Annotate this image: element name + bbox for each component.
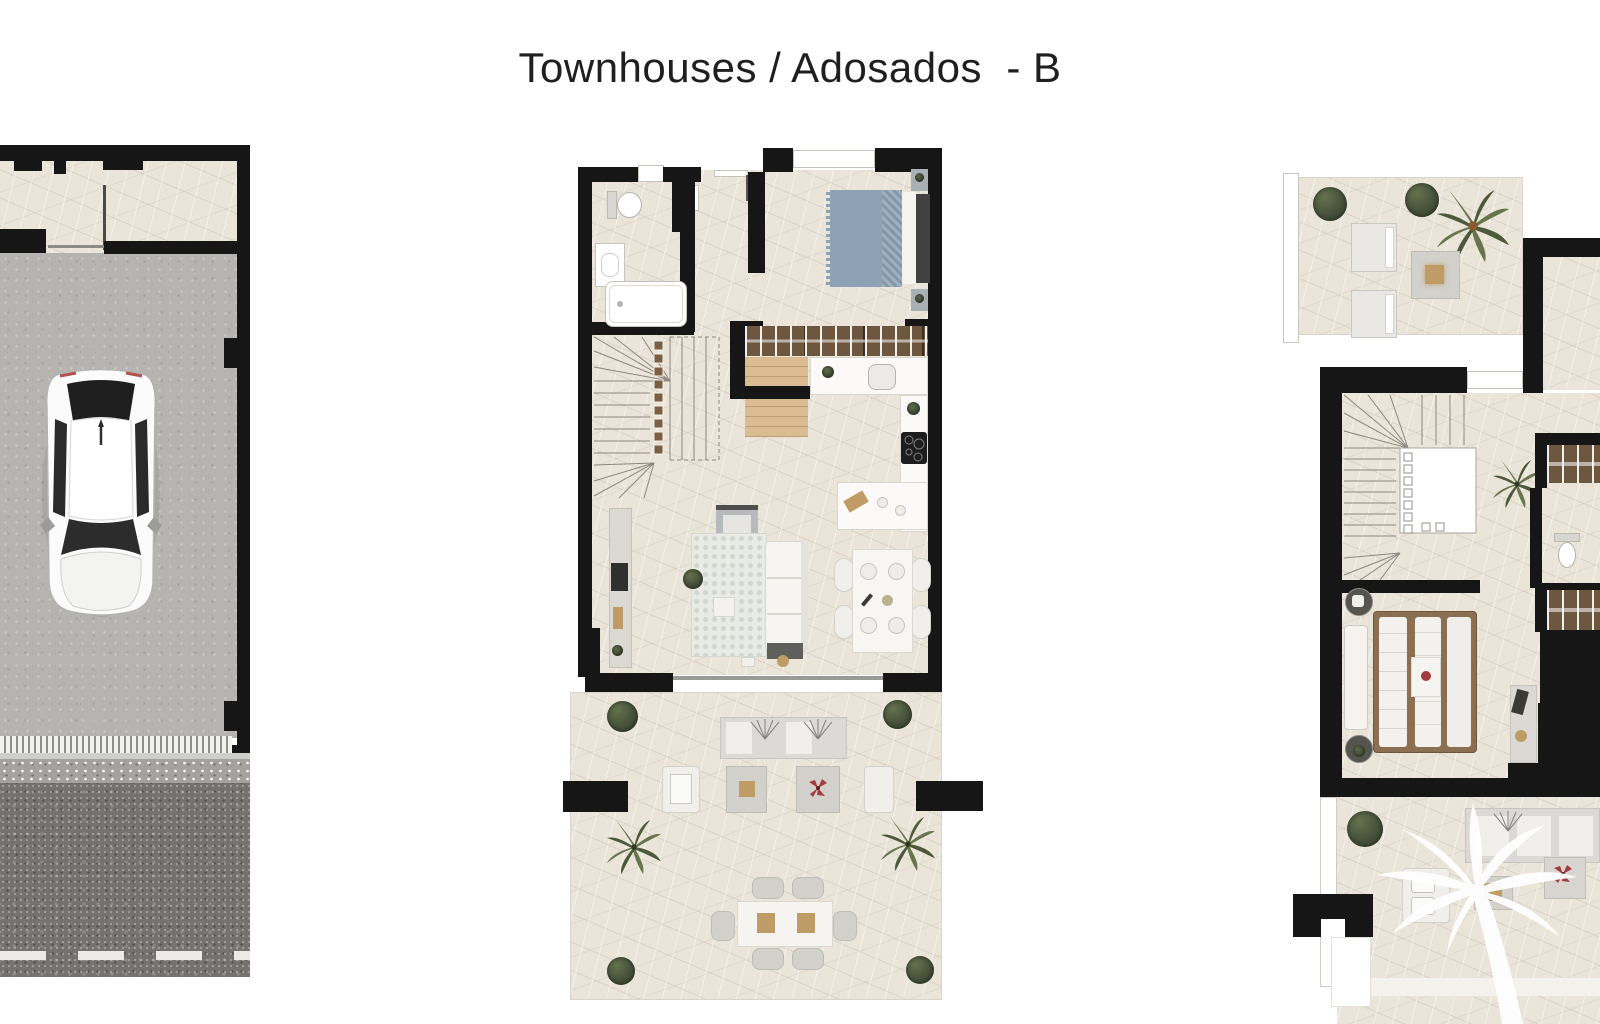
fire-bowl <box>1425 265 1444 284</box>
wall-bed-top-a <box>763 148 793 172</box>
pouf <box>713 597 735 617</box>
wall-notch-c <box>103 161 143 170</box>
bed-pillows <box>902 192 916 284</box>
throw-blanket-icon <box>803 719 833 741</box>
throw-blanket-icon <box>750 719 780 741</box>
kitchen-plant-icon <box>822 366 834 378</box>
pillar-right-upper <box>224 338 250 368</box>
sofa-backrest <box>801 541 808 651</box>
wardrobe-hangers <box>745 326 928 356</box>
nightstand-plant-icon <box>915 173 924 182</box>
outdoor-dining-chair <box>792 877 824 899</box>
bed-flower-decor <box>1421 671 1431 681</box>
console-decor <box>613 607 623 629</box>
plate <box>888 563 905 580</box>
bed-duvet <box>830 190 882 287</box>
wardrobe-hangers <box>1547 590 1600 630</box>
sofa-seam <box>767 613 801 615</box>
toilet-bowl <box>1558 542 1576 568</box>
sofa-seam <box>767 577 801 579</box>
bed-duvet-pattern <box>882 190 902 287</box>
console-plant-icon <box>612 645 623 656</box>
dining-chair <box>834 605 854 639</box>
wall-right <box>928 148 942 677</box>
wall-bath-top-a <box>578 167 638 182</box>
terrace-bush-icon <box>883 700 912 729</box>
red-flower-icon <box>807 777 829 799</box>
garage-door <box>0 736 232 753</box>
bed-headboard <box>916 194 930 283</box>
terrace-bush-icon <box>1313 187 1347 221</box>
bedroom-bench <box>1344 625 1368 730</box>
wall-notch-b <box>54 161 66 174</box>
outdoor-dining-chair <box>833 911 857 941</box>
wall-right <box>237 145 250 765</box>
toilet-bowl <box>617 192 642 218</box>
wall-entry <box>748 172 765 273</box>
door-threshold <box>48 245 104 248</box>
outdoor-dining-chair <box>752 948 784 970</box>
decor-box <box>741 657 755 667</box>
terrace-bush-icon <box>906 956 934 984</box>
dining-chair <box>911 558 931 592</box>
bath-window <box>638 165 664 182</box>
curb-strip <box>0 759 250 783</box>
staircase-icon <box>592 335 722 500</box>
wall-left <box>578 167 592 677</box>
wardrobe-hangers <box>1547 445 1600 483</box>
palm-plant-icon <box>881 815 935 873</box>
page-title: Townhouses / Adosados - B <box>0 44 1580 92</box>
armchair-cushion <box>670 774 692 804</box>
closet-wall-left <box>730 321 745 396</box>
wall-mid-left <box>0 229 46 253</box>
plate <box>860 617 877 634</box>
wall-top-right <box>1538 238 1600 257</box>
bath-wall <box>1530 488 1542 588</box>
coffee-table-tray <box>739 781 755 797</box>
plan-garage-level <box>0 145 250 979</box>
wardrobe-wall <box>1547 433 1600 445</box>
wardrobe-wall <box>1547 583 1600 590</box>
sliding-glass-door <box>673 676 883 680</box>
car-top-view-icon <box>40 367 162 619</box>
nightstand-plant-icon <box>915 294 924 303</box>
sofa-cushion <box>726 722 752 754</box>
bedroom-window <box>793 150 875 168</box>
dining-chair <box>911 605 931 639</box>
palm-tree-icon <box>1355 795 1600 1024</box>
terrace-wall-stub-left <box>563 781 628 812</box>
upper-door <box>1467 371 1523 389</box>
cooktop-icon <box>901 432 927 464</box>
pillar-right-lower <box>224 701 250 731</box>
wall-corner <box>1523 367 1543 393</box>
floorplan-sheet: Townhouses / Adosados - B <box>0 0 1600 1024</box>
bathtub-drain <box>617 301 623 307</box>
lounger-pillow <box>1385 294 1394 334</box>
toilet-tank <box>1554 533 1580 542</box>
street-lane-marking <box>0 951 250 960</box>
wall-bath-top-b <box>663 167 701 182</box>
wall-bl-horiz <box>585 673 673 692</box>
wall-stairs-top <box>1320 367 1467 393</box>
wall-notch-a <box>14 161 42 171</box>
palm-plant-icon <box>607 817 661 877</box>
wall-left <box>1320 367 1342 797</box>
terrace-wall-stub-right <box>916 781 983 811</box>
plate <box>888 617 905 634</box>
toilet-tank <box>607 191 617 219</box>
desk-flower <box>1515 730 1527 742</box>
plan-upper-level <box>1265 145 1600 1024</box>
terrace-bush-icon <box>1405 183 1439 217</box>
upper-hallway-floor <box>1543 257 1600 390</box>
outdoor-dining-table <box>737 901 833 947</box>
outdoor-dining-chair <box>711 911 735 941</box>
wardrobe-wall <box>1535 583 1547 632</box>
bed-runner <box>1447 617 1471 747</box>
bed-pillow-column <box>1379 617 1407 747</box>
kitchen-plant-icon <box>907 402 920 415</box>
tv-icon <box>611 563 628 591</box>
dining-chair <box>834 558 854 592</box>
decor-flower <box>777 655 789 667</box>
wall-block <box>1538 703 1600 763</box>
wall-mid <box>104 241 250 254</box>
kitchen-sink <box>868 364 896 390</box>
nightstand-plant-icon <box>1353 745 1365 757</box>
closet-wall-bottom <box>730 386 810 399</box>
outdoor-dining-chair <box>792 948 824 970</box>
sink-basin <box>601 253 619 277</box>
placemat <box>757 913 775 933</box>
staircase-icon <box>1342 393 1480 593</box>
wardrobe-wall <box>1535 433 1547 488</box>
plate <box>877 497 888 508</box>
plan-main-level <box>545 145 965 1005</box>
wall-br-horiz <box>883 673 942 692</box>
terrace-railing <box>1283 173 1299 343</box>
wall-top <box>0 145 250 161</box>
plate <box>895 505 906 516</box>
terrace-bush-icon <box>607 701 638 732</box>
living-rug <box>691 533 767 657</box>
lounger-pillow <box>1385 227 1394 268</box>
wall-stub-notch <box>1321 919 1345 937</box>
terrace-bush-icon <box>607 957 635 985</box>
street-asphalt <box>0 783 250 977</box>
wall-block <box>1540 630 1600 703</box>
outdoor-dining-chair <box>752 877 784 899</box>
outdoor-armchair <box>864 766 894 813</box>
nightstand-decor <box>1352 595 1364 607</box>
table-decor <box>882 595 893 606</box>
living-plant-icon <box>683 569 703 589</box>
placemat <box>797 913 815 933</box>
entry-door <box>714 170 748 177</box>
plate <box>860 563 877 580</box>
